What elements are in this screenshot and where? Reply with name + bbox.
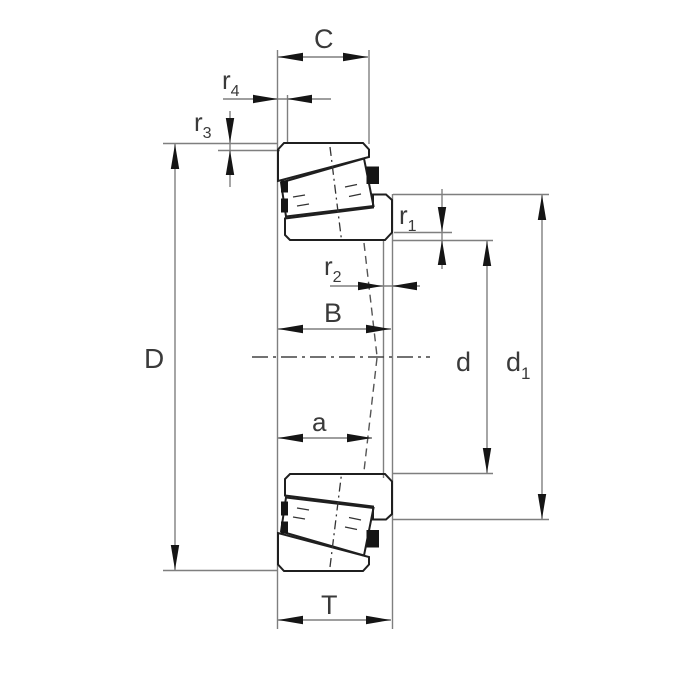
label-r2-base: r (324, 251, 333, 281)
label-r2-sub: 2 (333, 269, 342, 286)
label-T: T (321, 590, 338, 620)
label-D-text: D (144, 343, 164, 374)
label-a: a (312, 407, 327, 437)
label-r3-base: r (194, 107, 203, 137)
label-d-text: d (456, 347, 471, 377)
cage-section-large-end-b (367, 530, 380, 548)
cage-section-small-end-b2 (281, 502, 288, 516)
label-d1-sub: 1 (521, 364, 530, 383)
label-r3-sub: 3 (203, 125, 212, 142)
label-r1-base: r (399, 200, 408, 230)
label-T-text: T (321, 590, 338, 620)
bearing-dimension-drawing: C r4 r3 D B a T r2 r1 d d1 (0, 0, 680, 680)
label-r1-sub: 1 (408, 218, 417, 235)
label-D: D (144, 343, 164, 374)
cage-section-small-end-2 (281, 199, 288, 213)
label-d1-base: d (506, 347, 521, 377)
label-a-text: a (312, 407, 327, 437)
label-r4-base: r (222, 65, 231, 95)
label-B-text: B (324, 298, 342, 328)
label-r4-sub: 4 (231, 83, 240, 100)
background (0, 0, 680, 680)
cage-section-small-end-b (281, 522, 288, 534)
label-C: C (314, 24, 334, 54)
label-d: d (456, 347, 471, 377)
drawing-canvas: C r4 r3 D B a T r2 r1 d d1 (0, 0, 680, 680)
label-C-text: C (314, 24, 334, 54)
cage-section-large-end (367, 167, 380, 185)
cage-section-small-end (281, 181, 288, 193)
label-B: B (324, 298, 342, 328)
